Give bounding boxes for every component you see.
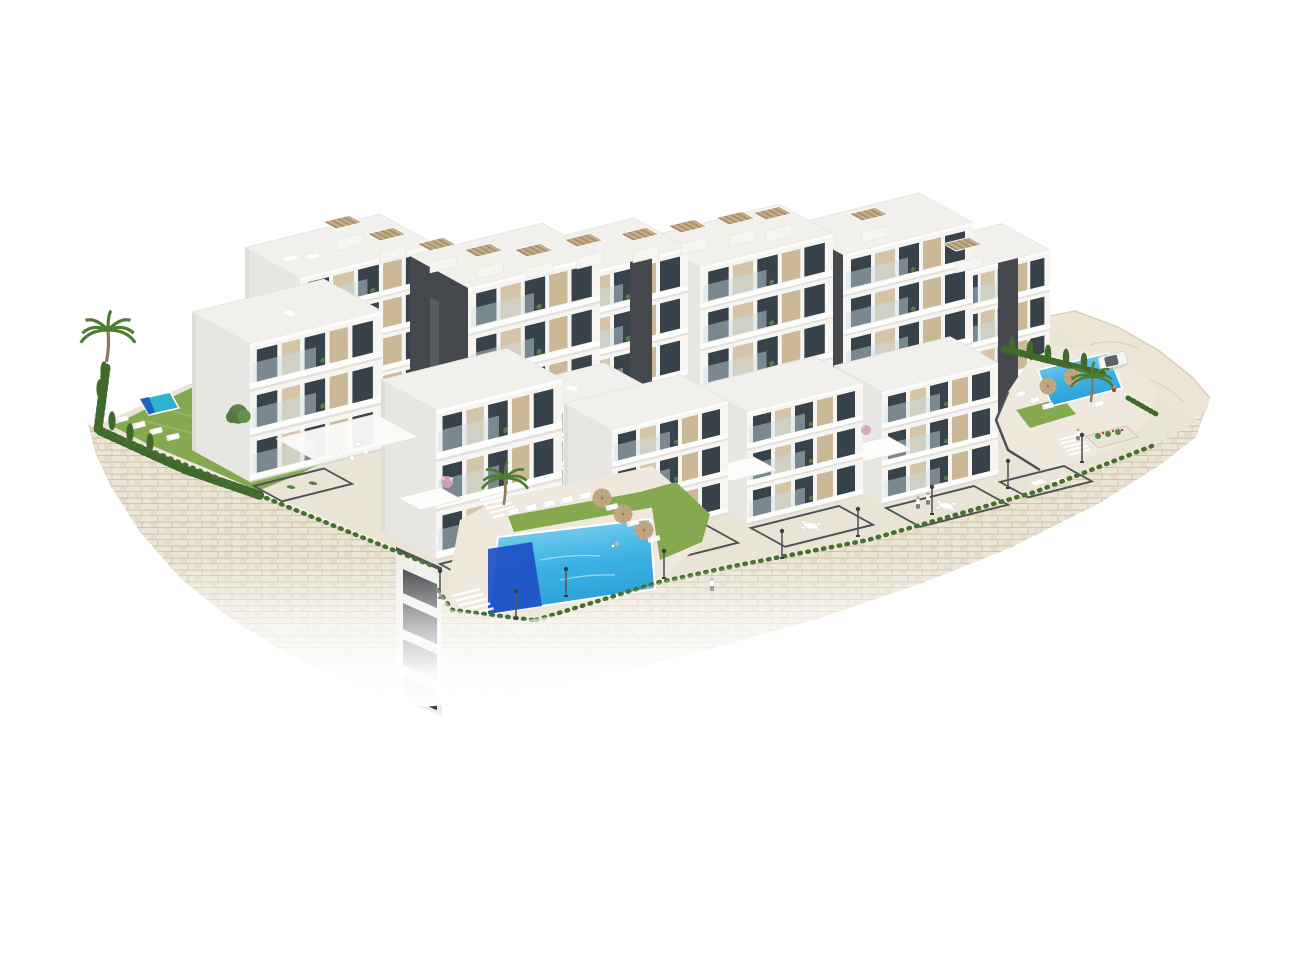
cypress-tree (1063, 349, 1070, 367)
parasol-umbrella (593, 489, 612, 508)
cypress-tree (100, 361, 107, 380)
side-wall (381, 380, 436, 560)
cypress-tree (1081, 353, 1088, 371)
cypress-tree (108, 411, 115, 430)
cypress-tree (1027, 341, 1034, 359)
cypress-tree (1045, 345, 1052, 363)
architectural-render (0, 0, 1290, 980)
pink-flowering-shrub (861, 425, 871, 435)
pink-flowering-shrub (441, 476, 453, 488)
parasol-umbrella (1040, 378, 1057, 395)
site-render-canvas (0, 0, 1290, 980)
cypress-tree (98, 395, 105, 414)
cypress-tree (1009, 337, 1016, 355)
